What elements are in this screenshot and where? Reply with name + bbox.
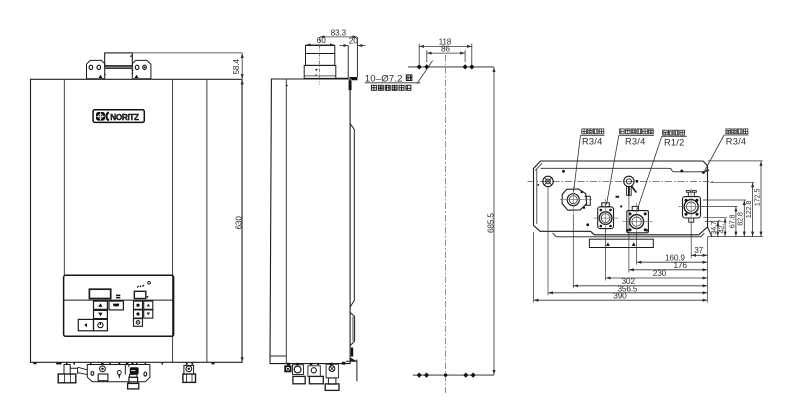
svg-text:230: 230 [653,268,667,278]
svg-text:630: 630 [233,216,243,230]
svg-text:R3/4: R3/4 [726,136,746,146]
svg-text:42.7: 42.7 [717,220,726,234]
svg-text:172.5: 172.5 [752,189,761,207]
svg-text:R3/4: R3/4 [625,137,645,147]
svg-text:83.3: 83.3 [331,27,347,37]
svg-text:37: 37 [694,245,703,255]
svg-text:R1/2: R1/2 [664,138,684,148]
svg-text:86: 86 [441,44,450,54]
svg-text:685.5: 685.5 [486,213,496,233]
svg-text:20: 20 [349,35,358,45]
svg-text:176: 176 [674,260,688,270]
svg-text:390: 390 [613,291,627,301]
svg-text:R3/4: R3/4 [582,137,602,147]
svg-text:58.4: 58.4 [231,59,241,75]
svg-text:NORITZ: NORITZ [110,113,139,122]
